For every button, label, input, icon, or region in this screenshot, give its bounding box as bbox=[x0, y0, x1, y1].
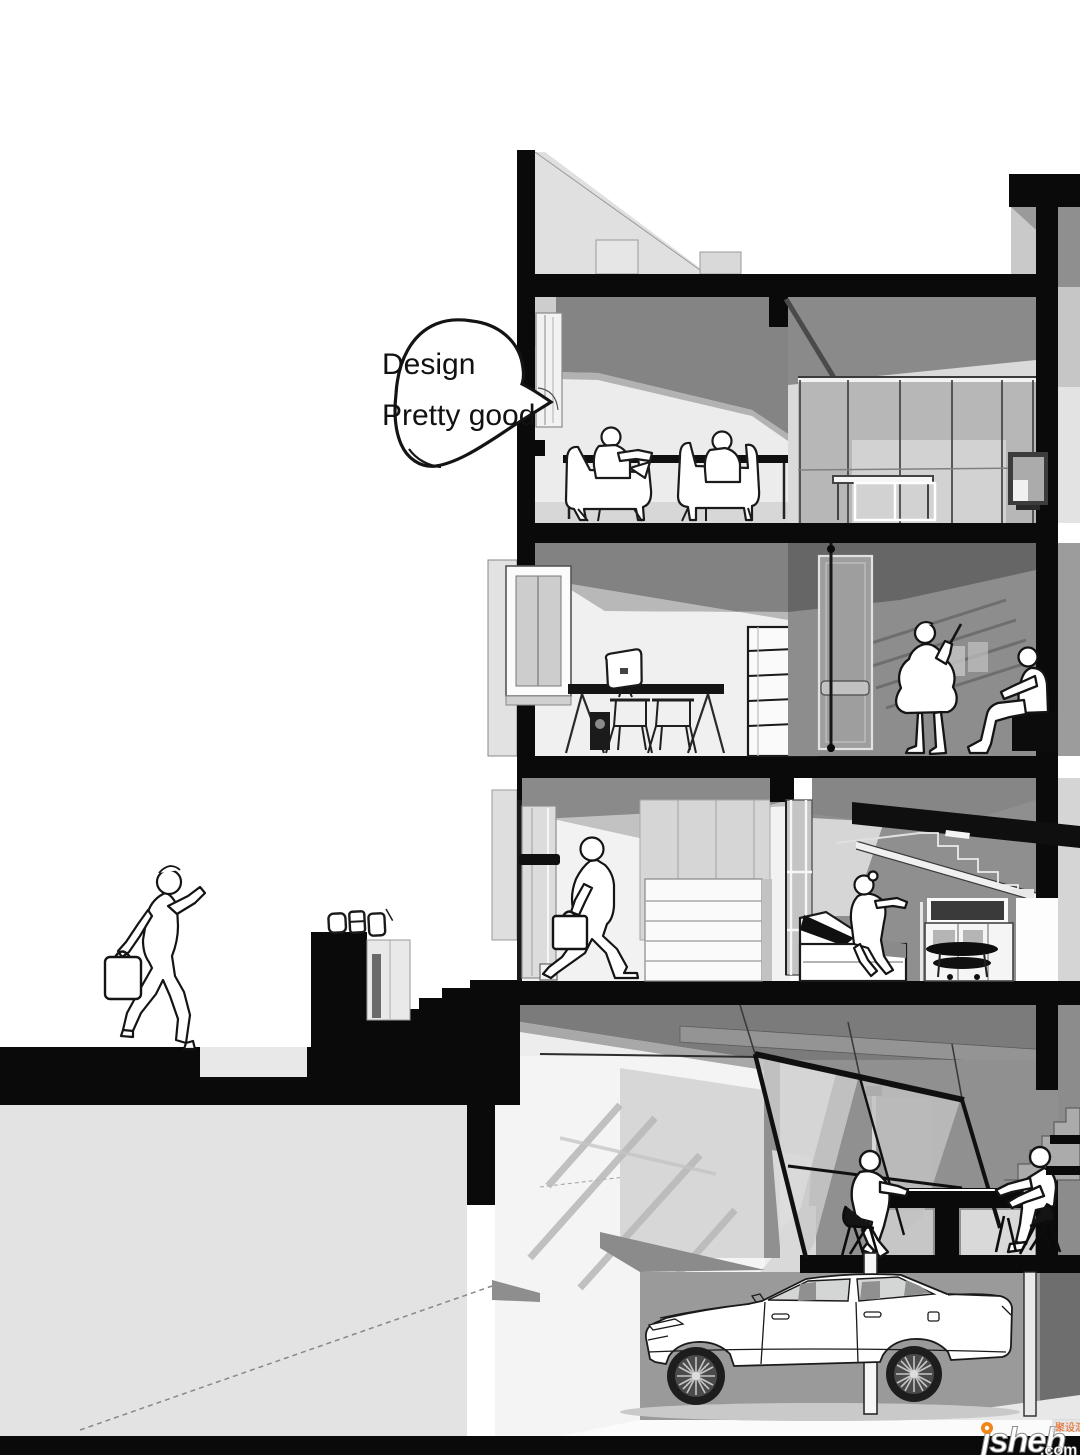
svg-text:Pretty good: Pretty good bbox=[382, 399, 535, 432]
svg-text:.com: .com bbox=[1040, 1442, 1077, 1455]
svg-text:Design: Design bbox=[382, 348, 475, 381]
svg-text:聚设汇: 聚设汇 bbox=[1055, 1421, 1080, 1434]
